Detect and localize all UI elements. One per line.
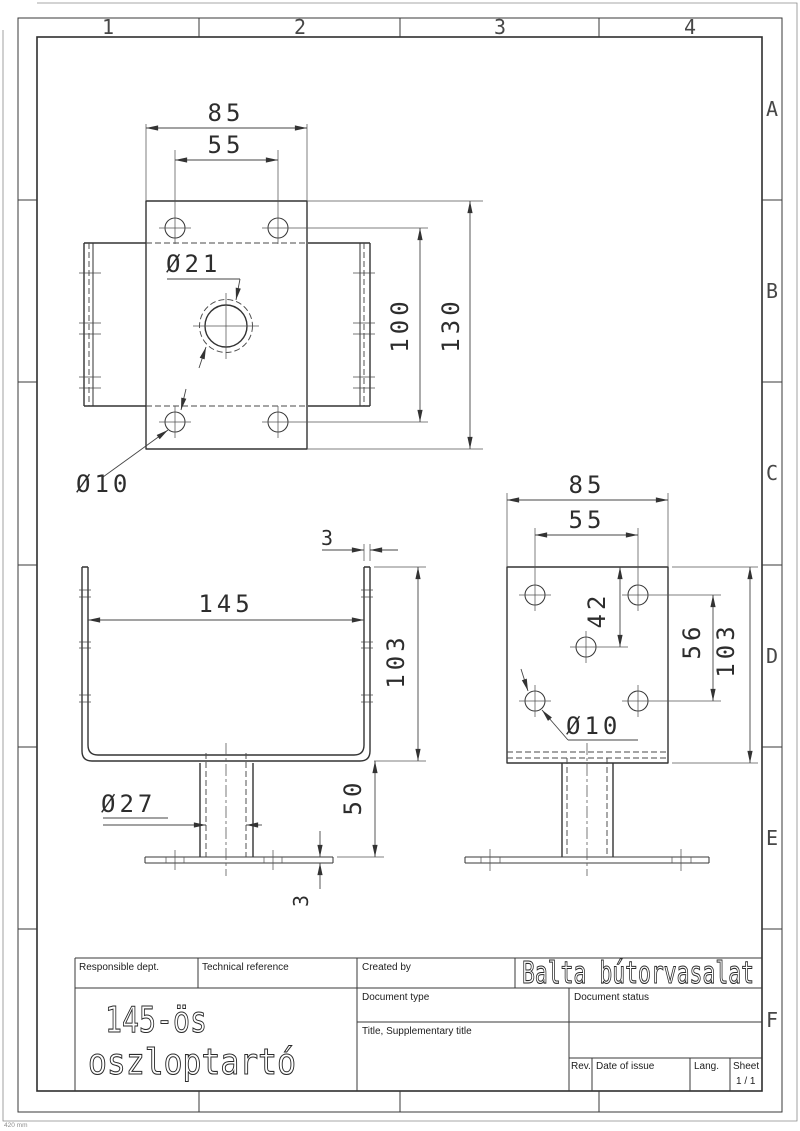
dim-text-inner-width: 145 — [198, 590, 253, 618]
base-plate — [145, 857, 333, 863]
grid-band-right: A B C D E F — [762, 97, 782, 1032]
top-view-hidden-lines — [89, 243, 364, 406]
top-view-plate — [146, 201, 307, 449]
leader-arrow-d10-a — [542, 710, 568, 740]
dim-text-height: 103 — [712, 622, 740, 677]
dim-text-mid-hole-offset: 42 — [583, 592, 611, 629]
top-view-outlines — [79, 201, 375, 449]
dim-text-width: 85 — [569, 471, 606, 499]
top-view-arm-edges — [84, 243, 370, 406]
grid-band-right-dividers — [762, 200, 782, 929]
title-block: Responsible dept. Technical reference Cr… — [75, 956, 762, 1091]
top-view-bend-lines — [93, 243, 360, 406]
grid-column-label: 1 — [102, 15, 114, 39]
grid-column-label: 3 — [494, 15, 506, 39]
grid-row-label: B — [766, 279, 778, 303]
channel-bottom-hidden — [507, 752, 668, 758]
top-view: 85 55 100 130 Ø21 Ø10 — [76, 99, 483, 498]
leader-arrow-d21-a — [236, 279, 240, 300]
base-hole-centers — [490, 849, 681, 871]
front-view: 3 145 103 Ø27 50 3 — [79, 526, 426, 907]
grid-row-label: C — [766, 461, 778, 485]
side-view: 85 55 42 56 103 Ø10 — [465, 471, 758, 876]
dim-text-bolt-hole: Ø10 — [76, 470, 131, 498]
date-of-issue-label: Date of issue — [596, 1061, 655, 1072]
document-status-label: Document status — [574, 992, 649, 1003]
sheet-size-note: 420 mm — [4, 1122, 27, 1129]
dim-text-bolt-spacing: 55 — [569, 506, 606, 534]
drawing-title-line2: oszloptartó — [88, 1042, 296, 1083]
grid-column-label: 4 — [684, 15, 696, 39]
dim-text-height: 103 — [382, 633, 410, 688]
grid-band-left-dividers — [18, 200, 37, 929]
rev-label: Rev. — [571, 1061, 591, 1072]
extension-lines — [146, 124, 483, 449]
dim-text-post-height: 50 — [339, 779, 367, 816]
technical-drawing-svg: 1 2 3 4 A B C D E F 420 mm — [0, 0, 800, 1131]
top-view-hidden — [89, 243, 364, 406]
side-view-dimensions: 85 55 42 56 103 Ø10 — [507, 471, 758, 763]
post-outline — [200, 763, 253, 857]
paper-edge — [3, 3, 797, 1121]
dim-text-post-diameter: Ø27 — [101, 790, 156, 818]
top-view-arm-caps — [84, 243, 370, 406]
dim-text-bolt-row-spacing: 100 — [386, 297, 414, 352]
sheet-label: Sheet — [733, 1061, 759, 1072]
document-type-label: Document type — [362, 992, 430, 1003]
drawing-title-line1: 145-ös — [105, 1000, 207, 1041]
dim-text-width: 85 — [208, 99, 245, 127]
dim-text-wall-thickness: 3 — [321, 526, 335, 550]
responsible-dept-label: Responsible dept. — [79, 962, 159, 973]
sheet-number: 1 / 1 — [736, 1076, 756, 1087]
grid-row-label: F — [766, 1008, 778, 1032]
dim-text-bolt-row-spacing: 56 — [678, 623, 706, 660]
grid-column-label: 2 — [294, 15, 306, 39]
front-view-dimensions: 3 145 103 Ø27 50 3 — [88, 526, 426, 907]
lang-label: Lang. — [694, 1061, 719, 1072]
top-view-dimensions: 85 55 100 130 Ø21 Ø10 — [76, 99, 483, 498]
grid-band-bottom-dividers — [199, 1091, 599, 1112]
grid-band-top-dividers — [199, 18, 599, 37]
dim-text-length: 130 — [437, 297, 465, 352]
grid-row-label: D — [766, 644, 778, 668]
dim-text-base-thickness: 3 — [289, 893, 313, 907]
grid-band-left — [18, 200, 37, 929]
company-name: Balta bútorvasalat — [522, 956, 754, 991]
dim-text-center-hole: Ø21 — [166, 250, 221, 278]
base-hole-edges — [166, 857, 282, 863]
post-outline — [562, 763, 613, 857]
trim-line — [18, 18, 782, 1112]
grid-band-top: 1 2 3 4 — [102, 15, 696, 39]
title-supplementary-label: Title, Supplementary title — [362, 1026, 472, 1037]
front-view-hidden-lines — [206, 743, 246, 876]
drawing-sheet: 1 2 3 4 A B C D E F 420 mm — [0, 0, 800, 1131]
created-by-label: Created by — [362, 962, 411, 973]
dim-text-bolt-spacing: 55 — [208, 131, 245, 159]
grid-band-bottom — [199, 1091, 599, 1112]
top-view-edge-ticks — [79, 273, 375, 388]
base-hole-edges — [481, 857, 691, 863]
leader-arrow-d21-b — [199, 347, 206, 368]
base-hole-centers — [175, 850, 273, 870]
grid-row-label: A — [766, 97, 778, 121]
leader-arrow-d10-b — [181, 389, 186, 410]
leader-arrow-d10-b — [521, 669, 528, 691]
dim-text-bolt-hole: Ø10 — [566, 712, 621, 740]
technical-reference-label: Technical reference — [202, 962, 289, 973]
grid-row-label: E — [766, 826, 778, 850]
